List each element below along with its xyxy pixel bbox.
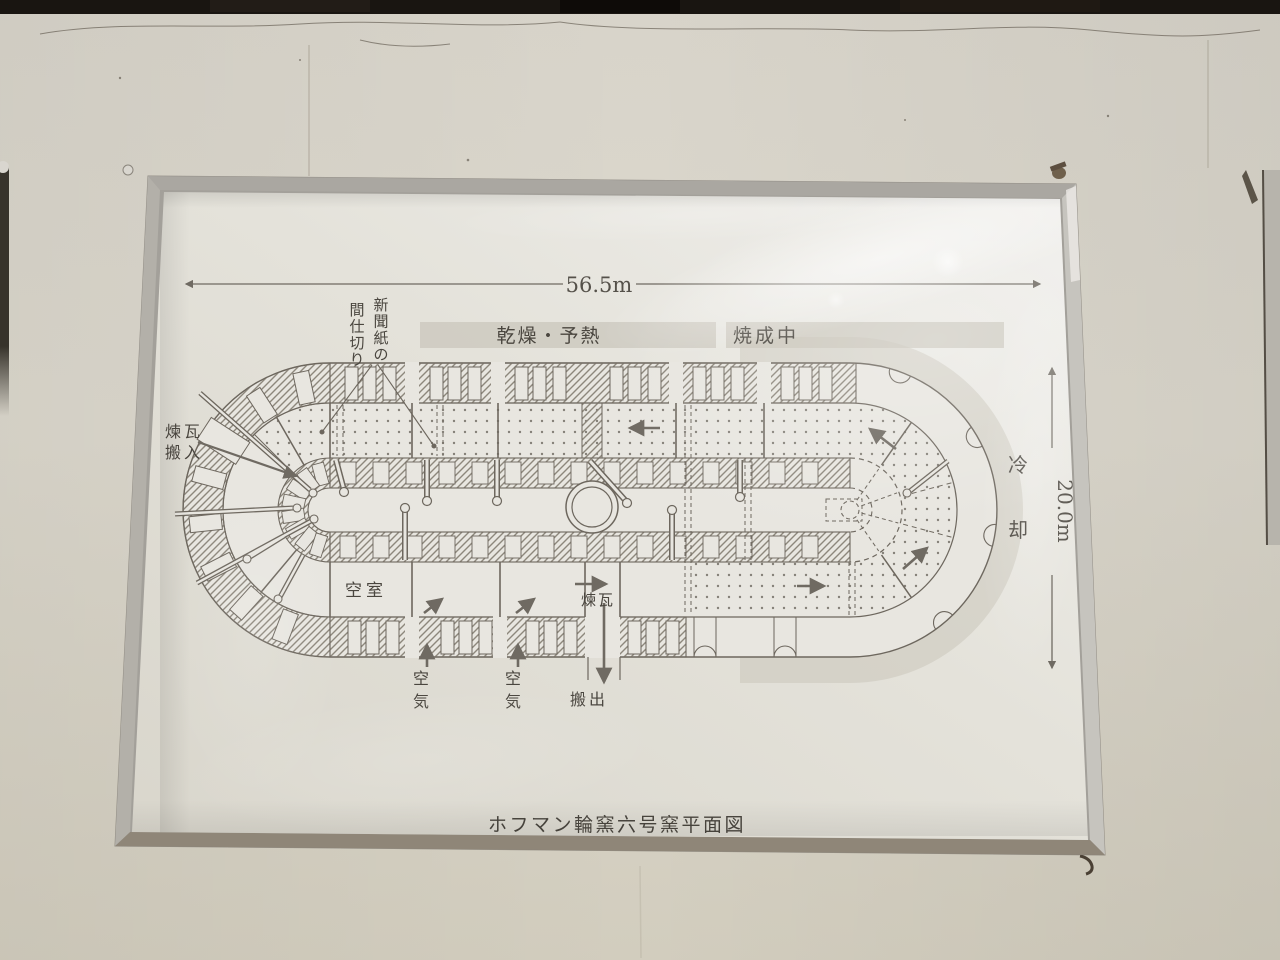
left-neighbor-frame	[0, 161, 9, 416]
ceiling-beam	[0, 0, 1280, 14]
brick-label: 煉瓦	[581, 592, 615, 609]
zone-drying-label: 乾燥・予熱	[496, 325, 601, 347]
chimney-circle	[566, 481, 618, 533]
wall-plank-seam	[640, 866, 641, 958]
frame-hook-top-left	[123, 165, 133, 175]
dim-width-label: 56.5m	[566, 273, 633, 297]
photo-scene: 56.5m 20.0m 乾燥・予熱 焼成中 冷却 新聞紙の 間仕切り 煉瓦 搬入…	[0, 0, 1280, 960]
newspaper-partition-label-right: 新聞紙の	[373, 297, 388, 364]
newspaper-partition-label-left: 間仕切り	[349, 302, 364, 369]
empty-chamber-label: 空室	[345, 581, 387, 600]
